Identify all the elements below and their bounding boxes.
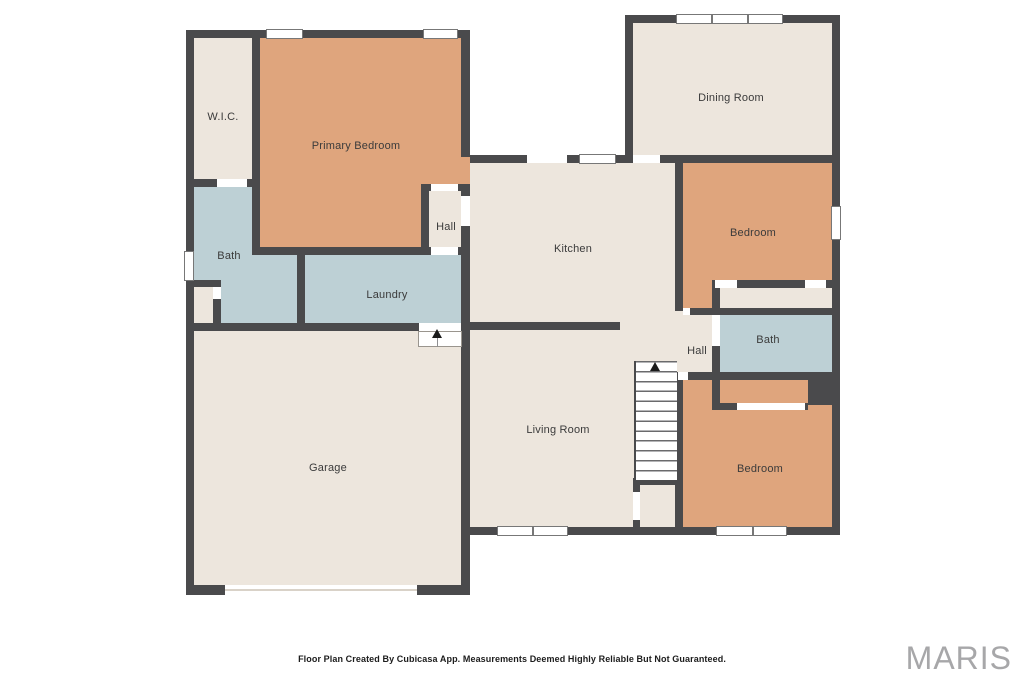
wall <box>186 30 194 595</box>
wall <box>633 155 840 163</box>
window <box>831 206 841 240</box>
window <box>579 154 616 164</box>
window-mullion <box>752 527 754 535</box>
door-swing-line <box>437 338 438 347</box>
room-primary-bedroom <box>260 184 421 247</box>
window <box>676 14 783 24</box>
room-label-primary-bedroom: Primary Bedroom <box>312 140 401 152</box>
wall <box>461 30 470 157</box>
room-label-bedroom-bottom: Bedroom <box>737 463 783 475</box>
window <box>423 29 458 39</box>
room-garage <box>194 331 462 585</box>
wall <box>417 585 470 595</box>
door-opening <box>678 372 688 380</box>
room-label-dining-room: Dining Room <box>698 92 764 104</box>
wall <box>461 226 470 595</box>
wall <box>690 308 832 315</box>
maris-logo: MARIS <box>906 640 1012 677</box>
door-opening <box>217 179 247 187</box>
wall <box>712 372 808 380</box>
room-primary-bedroom <box>260 38 470 184</box>
door-opening <box>715 280 737 288</box>
door-opening <box>805 280 826 288</box>
room-label-bedroom-top: Bedroom <box>730 227 776 239</box>
window <box>716 526 787 536</box>
door-opening <box>737 403 805 410</box>
wall <box>470 322 620 330</box>
room-wic <box>194 38 252 179</box>
wall <box>675 163 683 311</box>
window <box>266 29 303 39</box>
window <box>184 251 194 281</box>
door-opening <box>712 315 720 346</box>
closet-bedroom-top <box>720 288 832 308</box>
wall <box>297 255 305 323</box>
room-label-garage: Garage <box>309 462 347 474</box>
wall <box>625 15 633 163</box>
door-opening <box>431 184 458 191</box>
room-label-wic: W.I.C. <box>207 111 238 123</box>
room-label-bath-left: Bath <box>217 250 240 262</box>
door-opening <box>633 492 640 520</box>
wall <box>186 585 225 595</box>
room-hall-upper <box>429 191 461 247</box>
wall <box>832 15 840 535</box>
room-bath-left <box>194 187 252 255</box>
wall <box>712 346 720 372</box>
window-mullion <box>711 15 713 23</box>
room-dining <box>633 23 832 155</box>
window-mullion <box>532 527 534 535</box>
wall <box>421 184 429 255</box>
floor-plan-canvas: W.I.C. Primary Bedroom Dining Room Hall … <box>0 0 1024 682</box>
room-label-living-room: Living Room <box>526 424 589 436</box>
room-label-kitchen: Kitchen <box>554 243 592 255</box>
garage-door-opening <box>225 589 417 591</box>
room-label-laundry: Laundry <box>366 289 407 301</box>
room-label-hall-right: Hall <box>687 345 707 357</box>
closet-under-stairs <box>640 485 677 527</box>
window <box>497 526 568 536</box>
bath-closet <box>194 287 213 323</box>
room-label-hall-upper: Hall <box>436 221 456 233</box>
window-mullion <box>747 15 749 23</box>
room-hall-right <box>683 315 712 372</box>
wall <box>252 38 260 247</box>
door-up-arrow-icon <box>432 329 442 338</box>
room-label-bath-right: Bath <box>756 334 779 346</box>
staircase <box>634 361 677 480</box>
stairs-up-arrow-icon <box>650 362 660 371</box>
door-opening <box>213 287 221 299</box>
door-opening <box>431 247 458 255</box>
wall <box>194 280 221 287</box>
disclaimer-text: Floor Plan Created By Cubicasa App. Meas… <box>298 654 726 664</box>
wall <box>213 299 221 323</box>
door-opening <box>633 155 660 163</box>
chimney-block <box>808 372 840 405</box>
door-opening <box>527 155 567 163</box>
door-opening <box>461 196 470 226</box>
